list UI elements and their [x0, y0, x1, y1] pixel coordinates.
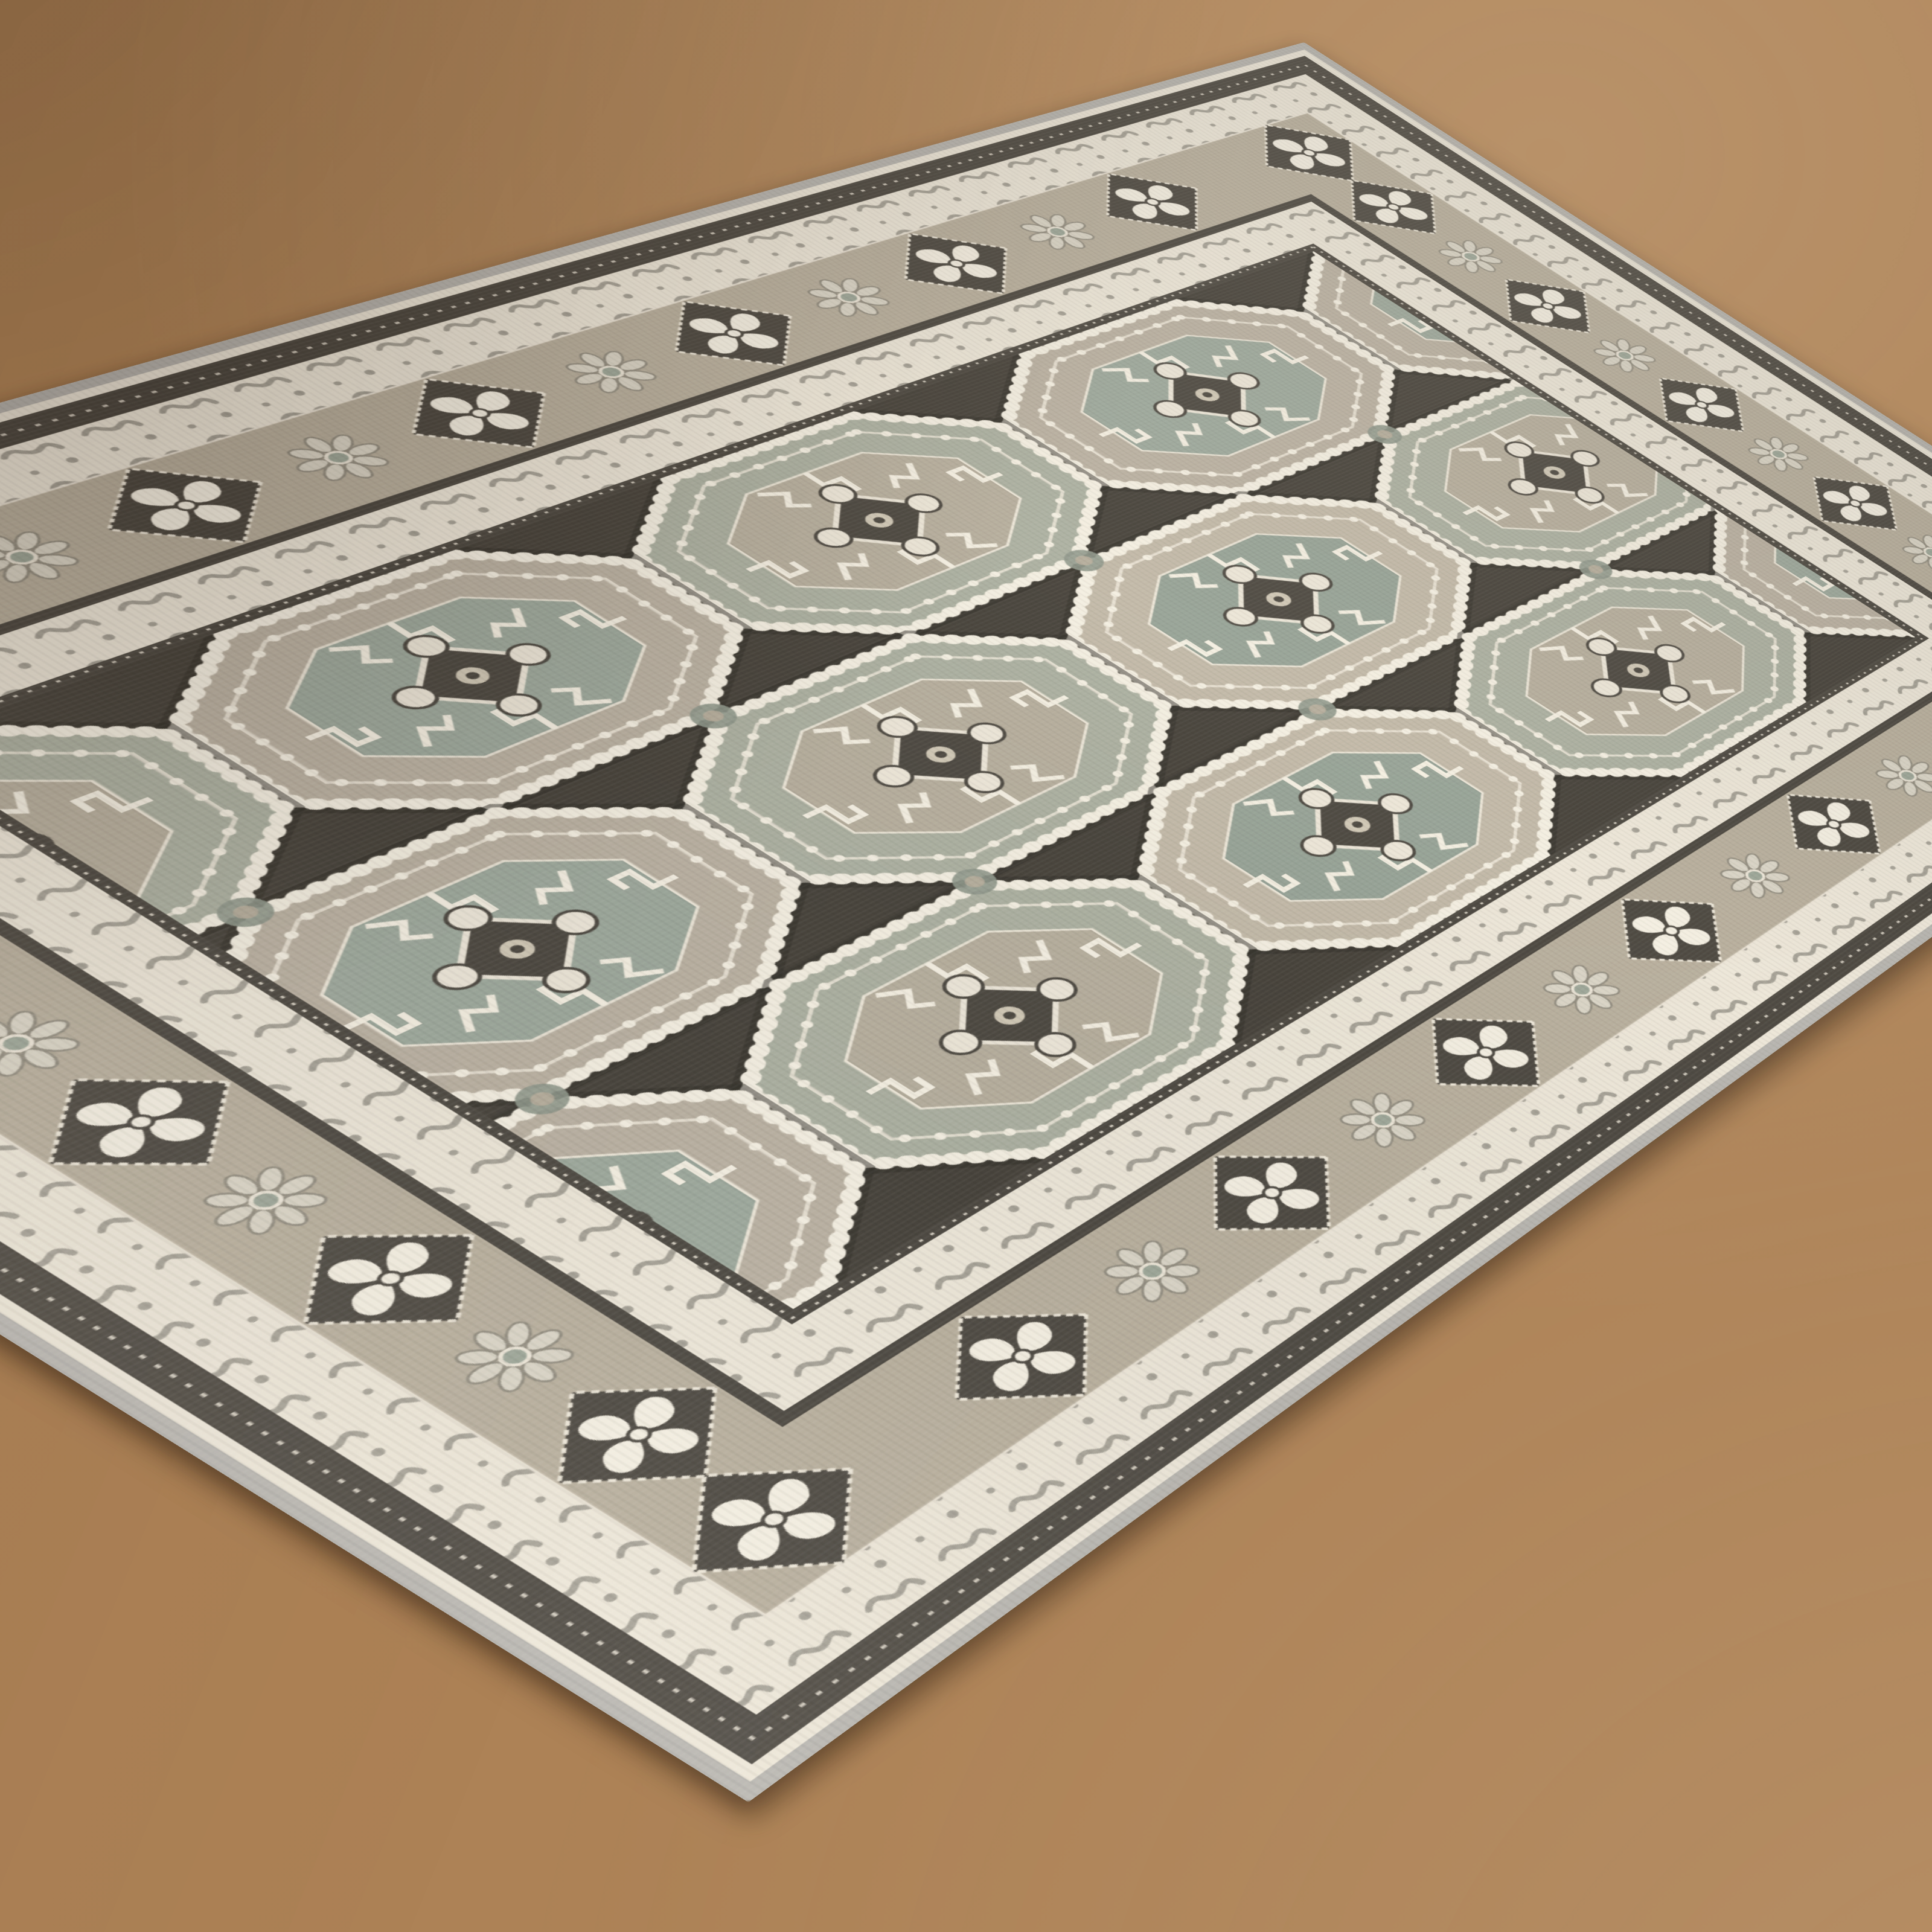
rug-face	[0, 42, 1932, 1802]
rug-product-photo	[0, 0, 1932, 1932]
pile-sheen	[0, 42, 1932, 1802]
rug-shadow-wrap	[0, 0, 1932, 1932]
area-rug	[0, 42, 1932, 1802]
